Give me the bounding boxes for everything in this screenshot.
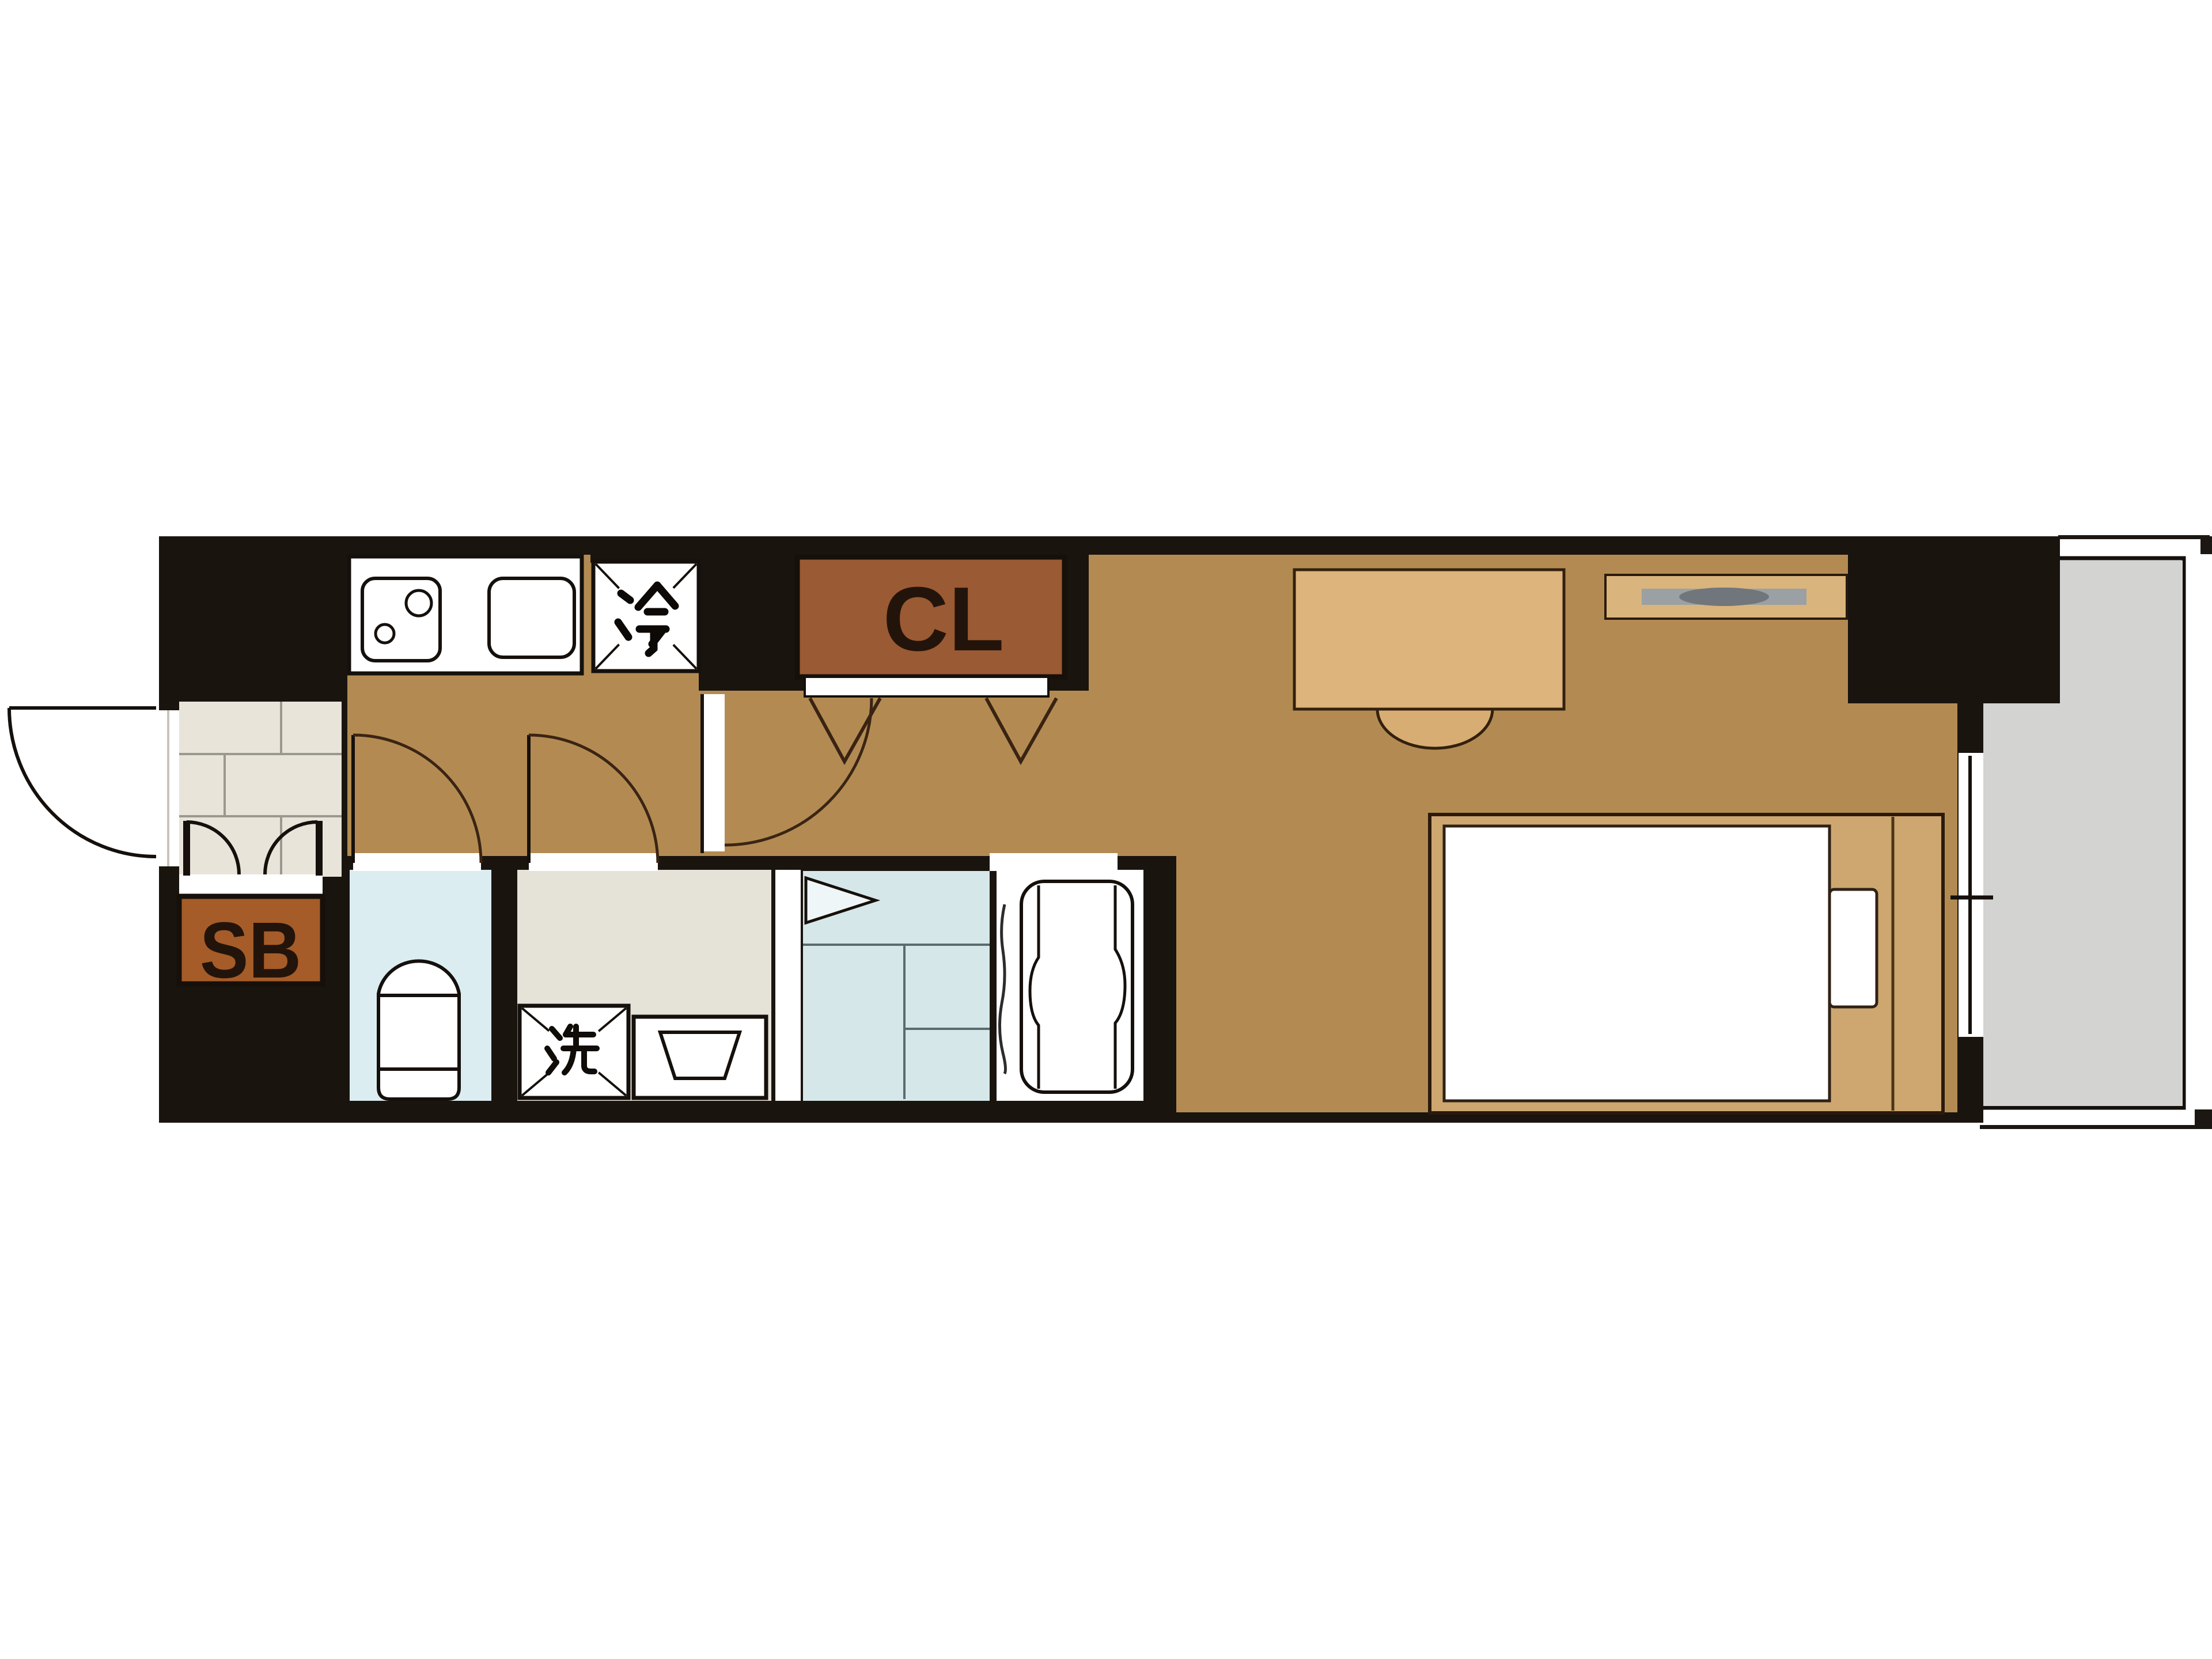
svg-text:SB: SB	[200, 906, 301, 995]
svg-text:CL: CL	[883, 569, 1005, 670]
